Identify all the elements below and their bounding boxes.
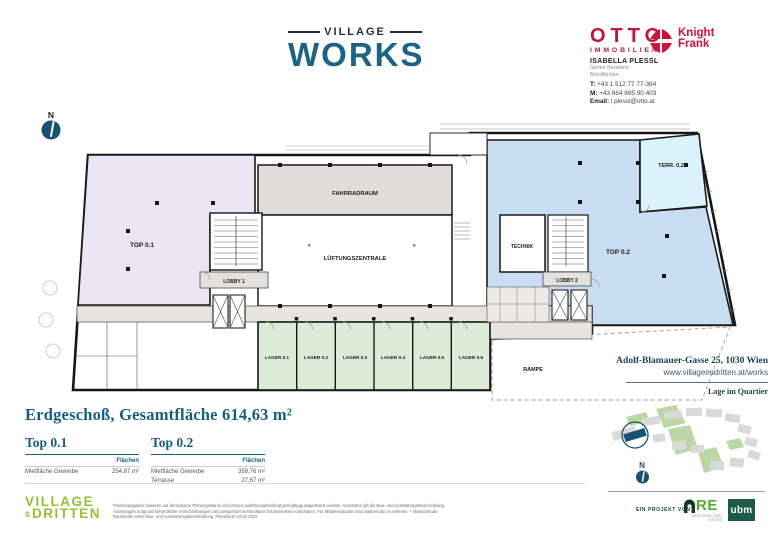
quarter-map: N: [598, 401, 770, 491]
brochure-page: VILLAGE WORKS OTTO IMMOBILIEN Knight Fra…: [0, 0, 770, 544]
address-block: Adolf-Blamauer-Gasse 25, 1030 Wien www.v…: [540, 356, 768, 396]
are-logo: RE AUSTRIAN REAL ESTATE: [683, 498, 723, 522]
entrance-vestibule: [430, 133, 487, 155]
room-label-lueftungszentrale: LÜFTUNGSZENTRALE: [324, 255, 387, 262]
address-website[interactable]: www.villageimdritten.at/works: [540, 368, 768, 377]
email-label: Email:: [590, 98, 609, 105]
frank-text: Frank: [678, 39, 714, 50]
room-label-top-0-1: TOP 0.1: [130, 242, 154, 249]
room-fahrradraum: [258, 165, 452, 215]
room-terrace-0-2: [640, 134, 707, 212]
unit-top-0-1: Top 0.1 Flächen Mietfläche Gewerbe 254,8…: [25, 435, 139, 485]
page-title: Erdgeschoß, Gesamtfläche 614,63 m²: [25, 405, 445, 425]
knight-frank-wordmark: Knight Frank: [678, 28, 714, 50]
contact-name: ISABELLA PLESSL: [590, 58, 658, 65]
are-re-text: RE: [696, 498, 718, 513]
room-label-top-0-2: TOP 0.2: [606, 249, 630, 256]
mobile-label: M:: [590, 90, 597, 97]
unit-top-0-2: Top 0.2 Flächen Mietfläche Gewerbe 359,7…: [151, 435, 265, 485]
row-value: 27,67 m²: [227, 476, 265, 485]
mobile-value: +43 664 885 90 403: [599, 90, 656, 97]
email-value[interactable]: i.plessl@otto.at: [611, 98, 655, 105]
wc-block: [487, 287, 549, 322]
unit-top-0-2-table: Flächen Mietfläche Gewerbe 359,76 m² Ter…: [151, 457, 265, 485]
lager-block: [258, 322, 490, 390]
table-row: Terrasse 27,67 m²: [151, 476, 265, 485]
unit-top-0-1-table: Flächen Mietfläche Gewerbe 254,87 m²: [25, 457, 139, 476]
room-label-lobby-1: LOBBY 1: [223, 279, 245, 285]
are-arch-icon: [683, 498, 696, 513]
table-row: Mietfläche Gewerbe 359,76 m²: [151, 467, 265, 477]
room-label-lager-0-4: LAGER 0.4: [381, 355, 406, 360]
map-north-compass-icon: N: [636, 461, 649, 484]
room-label-lager-0-3: LAGER 0.3: [343, 355, 368, 360]
vid-im-text: IM: [23, 511, 35, 518]
row-label: Mietfläche Gewerbe: [25, 467, 101, 477]
room-label-fahrradraum: FAHRRADRAUM: [332, 191, 378, 197]
row-value: 359,76 m²: [227, 467, 265, 477]
contact-block: ISABELLA PLESSL Senior Beraterin Büroflä…: [590, 58, 658, 107]
logo-right-bar: [390, 31, 422, 33]
row-value: 254,87 m²: [101, 467, 139, 477]
phone-label: T:: [590, 81, 595, 88]
row-label: Mietfläche Gewerbe: [151, 467, 227, 477]
address-divider: [626, 382, 768, 383]
unit-top-0-2-name: Top 0.2: [151, 435, 265, 455]
village-works-logo: VILLAGE WORKS: [288, 26, 422, 72]
north-compass-icon: N: [42, 110, 61, 140]
table-row: Mietfläche Gewerbe 254,87 m²: [25, 467, 139, 477]
compass-n-label: N: [48, 110, 54, 120]
knight-frank-diamond-icon: [648, 28, 674, 54]
core-2: [487, 215, 591, 322]
logo-works-text: WORKS: [288, 38, 422, 72]
map-title: Lage im Quartier: [540, 387, 768, 396]
col-header-flaechen: Flächen: [25, 457, 139, 467]
village-im-dritten-logo: VILLAGE IM DRITTEN: [25, 496, 101, 520]
address-street: Adolf-Blamauer-Gasse 25, 1030 Wien: [540, 356, 768, 366]
contact-email: Email: i.plessl@otto.at: [590, 98, 658, 107]
corridor-right: [490, 322, 592, 339]
phone-value: +43 1 512 77 77-364: [597, 81, 656, 88]
room-label-lager-0-2: LAGER 0.2: [304, 355, 329, 360]
area-summary: Erdgeschoß, Gesamtfläche 614,63 m² Top 0…: [25, 405, 445, 485]
logo-left-bar: [288, 31, 320, 33]
room-label-lager-0-6: LAGER 0.6: [459, 355, 484, 360]
unit-top-0-1-name: Top 0.1: [25, 435, 139, 455]
map-compass-n-label: N: [639, 461, 645, 470]
vid-dritten-text: DRITTEN: [32, 508, 101, 520]
room-label-lager-0-5: LAGER 0.5: [420, 355, 445, 360]
are-subtitle: AUSTRIAN REAL ESTATE: [683, 514, 723, 522]
contact-mobile: M: +43 664 885 90 403: [590, 90, 658, 99]
map-highlight: [622, 422, 648, 448]
contact-phone: T: +43 1 512 77 77-364: [590, 81, 658, 90]
ubm-text: ubm: [730, 505, 752, 516]
landscape-bushes: [39, 281, 60, 358]
room-label-terrace-0-2: TERR. 0.2: [658, 163, 684, 169]
right-column-divider: [608, 491, 765, 492]
room-label-lobby-2: LOBBY 2: [556, 278, 578, 284]
room-label-lager-0-1: LAGER 0.1: [265, 355, 290, 360]
col-header-flaechen: Flächen: [151, 457, 265, 467]
row-label: Terrasse: [151, 476, 227, 485]
room-label-technik: TECHNIK: [511, 244, 534, 250]
ubm-logo: ubm: [728, 499, 755, 521]
disclaimer-text: Flächenangaben basieren auf derzeitigem …: [113, 503, 445, 520]
